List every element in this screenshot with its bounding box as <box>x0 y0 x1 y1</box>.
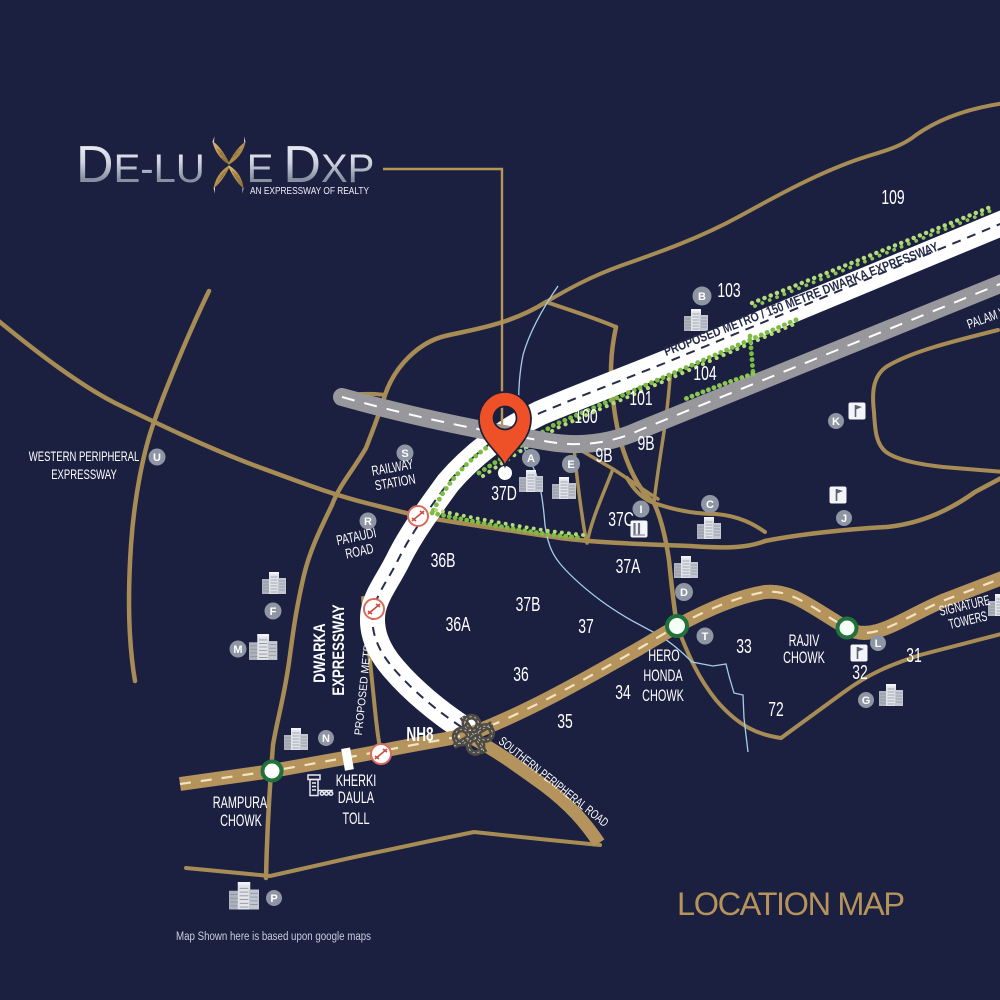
svg-text:K: K <box>832 416 840 428</box>
svg-text:NH8: NH8 <box>406 723 433 745</box>
svg-text:C: C <box>706 499 714 511</box>
svg-text:34: 34 <box>615 680 631 703</box>
svg-text:HONDA: HONDA <box>643 667 683 686</box>
svg-text:37D: 37D <box>491 481 517 504</box>
svg-text:101: 101 <box>629 386 652 409</box>
svg-text:HERO: HERO <box>648 647 679 666</box>
svg-text:CHOWK: CHOWK <box>783 649 825 668</box>
svg-text:LOCATION MAP: LOCATION MAP <box>677 886 905 922</box>
svg-text:E: E <box>567 459 574 471</box>
svg-text:WESTERN PERIPHERAL: WESTERN PERIPHERAL <box>29 448 140 464</box>
svg-text:CHOWK: CHOWK <box>220 812 262 831</box>
svg-text:N: N <box>322 733 330 745</box>
svg-text:31: 31 <box>906 643 921 666</box>
svg-text:109: 109 <box>881 185 904 208</box>
svg-text:100: 100 <box>574 404 597 427</box>
svg-text:36B: 36B <box>431 548 456 571</box>
svg-text:35: 35 <box>557 709 572 732</box>
svg-text:RAMPURA: RAMPURA <box>213 794 268 813</box>
svg-text:9B: 9B <box>637 431 654 454</box>
svg-text:M: M <box>233 644 242 656</box>
svg-text:T: T <box>702 631 709 643</box>
svg-text:36: 36 <box>513 662 528 685</box>
svg-text:A: A <box>527 453 535 465</box>
svg-text:J: J <box>841 513 847 525</box>
svg-text:36A: 36A <box>446 612 471 635</box>
svg-text:37A: 37A <box>616 554 641 577</box>
svg-text:P: P <box>270 893 277 905</box>
svg-text:U: U <box>153 452 161 464</box>
svg-text:9B: 9B <box>595 443 612 466</box>
svg-text:32: 32 <box>852 660 867 683</box>
svg-text:37C: 37C <box>608 507 634 530</box>
svg-text:G: G <box>862 695 871 707</box>
svg-text:TOLL: TOLL <box>342 810 369 829</box>
svg-text:B: B <box>698 291 706 303</box>
svg-text:L: L <box>875 638 882 650</box>
svg-text:CHOWK: CHOWK <box>642 687 684 706</box>
svg-text:DAULA: DAULA <box>338 789 375 808</box>
svg-text:EXPRESSWAY: EXPRESSWAY <box>51 466 117 482</box>
svg-text:F: F <box>270 606 277 618</box>
svg-text:I: I <box>639 504 642 516</box>
svg-text:DWARKA: DWARKA <box>311 623 330 683</box>
svg-text:AN EXPRESSWAY OF REALTY: AN EXPRESSWAY OF REALTY <box>250 186 369 197</box>
svg-text:103: 103 <box>717 278 740 301</box>
svg-text:EXPRESSWAY: EXPRESSWAY <box>330 604 349 695</box>
svg-text:33: 33 <box>736 634 751 657</box>
svg-text:D: D <box>680 587 688 599</box>
svg-text:104: 104 <box>693 361 716 384</box>
svg-text:37: 37 <box>578 614 593 637</box>
svg-text:37B: 37B <box>516 592 541 615</box>
svg-text:72: 72 <box>768 697 783 720</box>
svg-text:Map Shown here is based upon g: Map Shown here is based upon google maps <box>176 931 371 943</box>
